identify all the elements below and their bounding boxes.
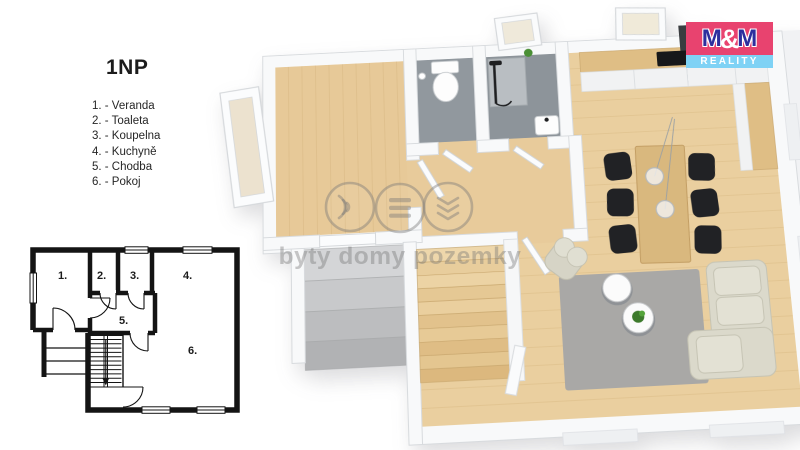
legend-item: 2. - Toaleta xyxy=(92,114,160,129)
room-label-4: 4. xyxy=(183,270,192,282)
room-label-2: 2. xyxy=(97,270,106,282)
bathroom-sink xyxy=(535,115,559,135)
logo-ampersand: & xyxy=(720,26,740,53)
listing-floorplan-image: 1NP 1. - Veranda 2. - Toaleta 3. - Koupe… xyxy=(0,0,800,450)
logo-m1: M xyxy=(702,27,722,51)
veranda-entry-door xyxy=(320,233,376,247)
floor-plan-3d-render xyxy=(252,4,800,450)
doors xyxy=(53,293,148,407)
legend-item: 3. - Koupelna xyxy=(92,129,160,144)
bathroom-window xyxy=(494,13,541,51)
logo-m2: M xyxy=(737,27,757,51)
staircase-3d xyxy=(416,245,510,383)
room-legend: 1. - Veranda 2. - Toaleta 3. - Koupelna … xyxy=(92,99,160,190)
room-label-3: 3. xyxy=(130,270,139,282)
legend-item: 6. - Pokoj xyxy=(92,175,160,190)
room-label-1: 1. xyxy=(58,270,67,282)
legend-item: 4. - Kuchyně xyxy=(92,145,160,160)
page-title: 1NP xyxy=(106,56,148,80)
entry-side-wall xyxy=(291,236,305,364)
floor-plan-2d: 1. 2. 3. 4. 5. 6. xyxy=(25,235,247,425)
entry-steps-symbol xyxy=(46,348,88,374)
kitchen-window xyxy=(616,8,666,40)
legend-item: 1. - Veranda xyxy=(92,99,160,114)
exterior-entry-steps xyxy=(304,245,407,371)
legend-item: 5. - Chodba xyxy=(92,160,160,175)
staircase-symbol xyxy=(89,336,124,388)
shower-fixture xyxy=(488,58,527,107)
room-label-5: 5. xyxy=(119,315,128,327)
logo-reality-label: REALITY xyxy=(686,55,773,68)
room-label-6: 6. xyxy=(188,345,197,357)
agency-logo: M&M REALITY xyxy=(686,22,773,68)
logo-top: M&M xyxy=(686,22,773,55)
